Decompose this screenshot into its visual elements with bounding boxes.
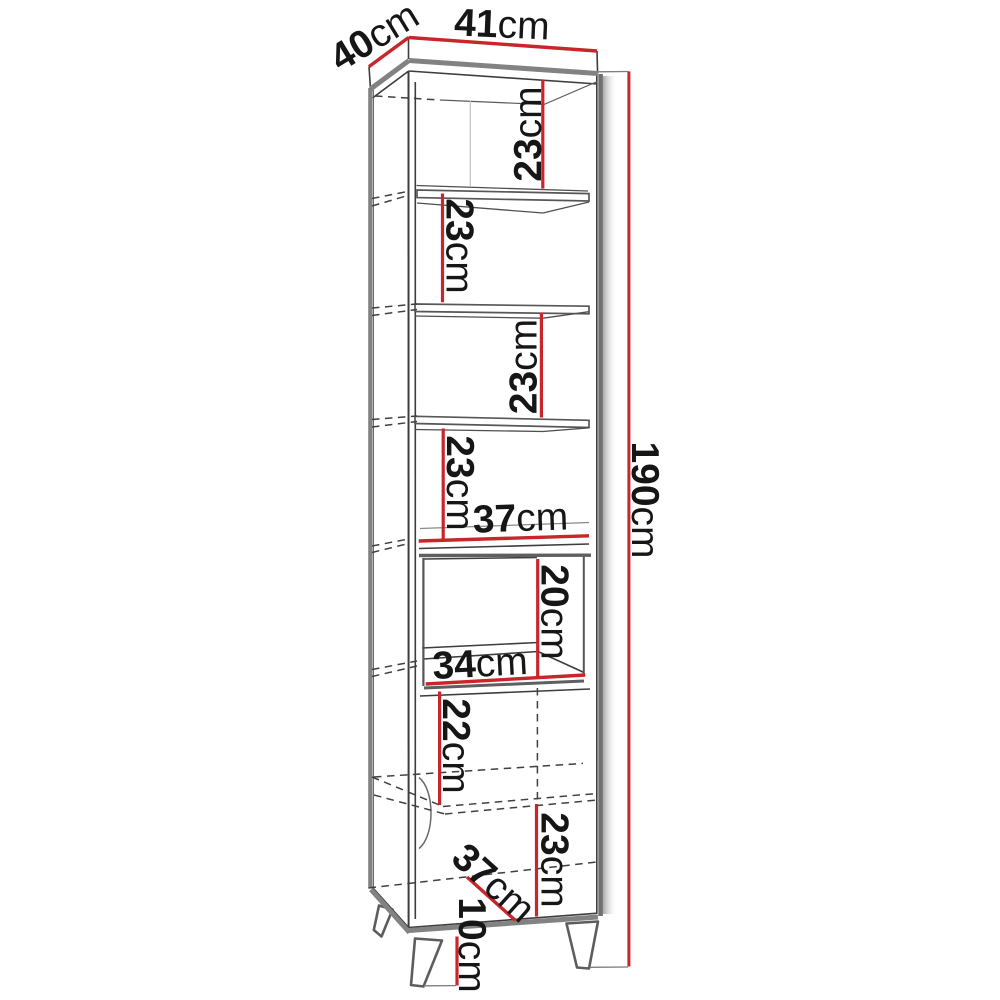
svg-text:23cm: 23cm [438,198,481,293]
svg-text:22cm: 22cm [434,698,477,793]
svg-text:34cm: 34cm [431,640,529,688]
svg-text:37cm: 37cm [472,495,569,541]
svg-text:20cm: 20cm [533,564,576,659]
svg-text:23cm: 23cm [507,86,550,181]
svg-text:23cm: 23cm [503,319,546,414]
svg-text:10cm: 10cm [450,897,493,992]
svg-text:41cm: 41cm [453,1,550,48]
svg-text:23cm: 23cm [533,812,576,907]
svg-text:40cm: 40cm [323,0,427,80]
svg-text:190cm: 190cm [623,441,666,558]
